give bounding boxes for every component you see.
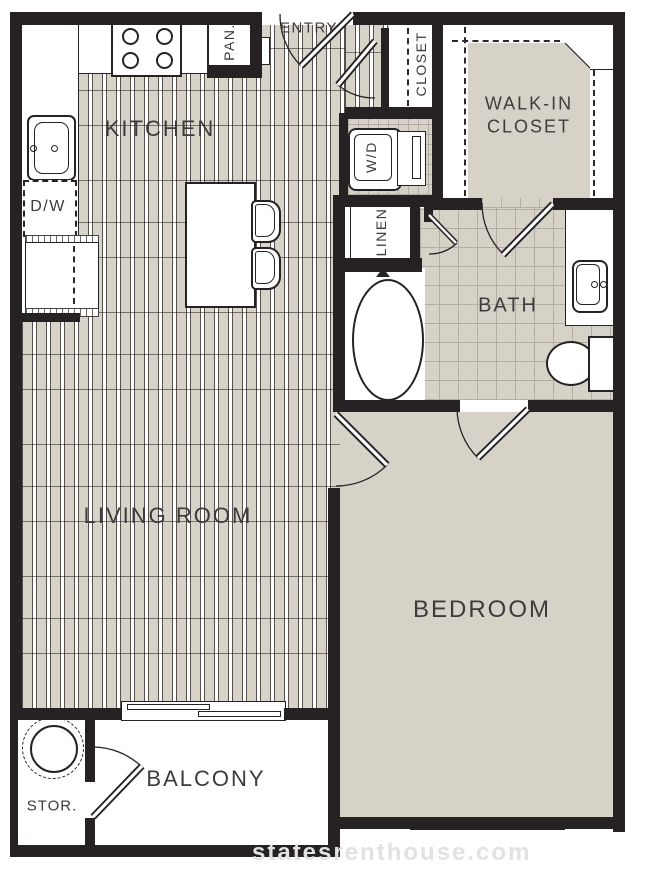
- watermark-text: statesrenthouse.com: [252, 839, 531, 867]
- wall-pantry-under: [207, 65, 250, 78]
- burner-icon: [156, 52, 173, 69]
- faucet-dot: [51, 145, 58, 152]
- faucet-dot: [591, 281, 598, 288]
- wall-living-bottom-right: [284, 708, 340, 720]
- sliding-door: [121, 701, 286, 721]
- wall-closet-right: [432, 12, 443, 210]
- washer-dryer-label: W/D: [363, 141, 379, 173]
- wall-laundry-left: [339, 113, 348, 197]
- wall-laundry-top: [345, 107, 432, 119]
- wall-bedroom-bottom: [328, 817, 625, 829]
- burner-icon: [156, 28, 173, 45]
- sliding-door-panel: [127, 704, 210, 710]
- faucet-dot: [600, 281, 607, 288]
- walkin-rod-dash-right: [593, 70, 595, 196]
- entry-label: ENTRY: [280, 20, 338, 37]
- bath-door-threshold: [482, 198, 553, 208]
- wall-storage-lower: [85, 818, 95, 845]
- linen-label: LINEN: [373, 208, 389, 257]
- bedroom-label: BEDROOM: [413, 596, 551, 624]
- kitchen-island: [185, 182, 256, 308]
- living-room-label: LIVING ROOM: [84, 503, 253, 529]
- kitchen-sink: [27, 115, 76, 181]
- balcony-label: BALCONY: [146, 766, 265, 792]
- bathtub: [352, 279, 424, 401]
- water-heater: [30, 725, 78, 773]
- wall-right: [613, 12, 625, 832]
- wall-counter-step: [18, 313, 80, 322]
- pantry-label: PAN.: [221, 23, 237, 61]
- closet-rod-dash: [407, 28, 409, 106]
- storage-label: STOR.: [27, 798, 78, 815]
- wall-linen-step: [424, 207, 433, 222]
- wall-top-left: [10, 12, 262, 25]
- faucet-dot: [30, 145, 37, 152]
- walkin-shelf-edge: [590, 69, 613, 70]
- kitchen-label: KITCHEN: [105, 116, 216, 142]
- walkin-label-line1: WALK-IN: [485, 94, 573, 115]
- sliding-door-panel: [198, 711, 281, 717]
- walkin-rod-dash-left: [464, 27, 466, 196]
- wall-living-east-mid: [333, 272, 345, 412]
- wall-closet-west: [381, 28, 389, 110]
- wall-bedroom-left: [328, 488, 340, 845]
- closet-label: CLOSET: [413, 31, 429, 96]
- wall-pantry-right: [250, 12, 262, 78]
- wall-bath-bottom-left: [333, 400, 460, 412]
- floor-plan: PAN. D/W CLOSET W/D LINEN: [0, 0, 650, 874]
- toilet-tank: [588, 336, 616, 392]
- bar-stool: [251, 247, 281, 290]
- wall-bath-top-right: [553, 198, 613, 210]
- wall-bath-top-left: [433, 198, 482, 210]
- wall-bath-bottom-right: [528, 400, 613, 412]
- dishwasher-label: D/W: [30, 198, 66, 216]
- bar-stool: [251, 200, 281, 243]
- wall-top-right: [353, 12, 625, 25]
- wall-living-bottom-left: [10, 708, 121, 720]
- burner-icon: [122, 52, 139, 69]
- walkin-shelf-dash: [452, 40, 560, 42]
- wall-linen-right: [410, 205, 420, 262]
- wall-tub-top: [333, 258, 422, 272]
- burner-icon: [122, 28, 139, 45]
- refrigerator: [25, 242, 99, 310]
- walkin-label-line2: CLOSET: [487, 117, 571, 138]
- wall-left: [10, 12, 22, 720]
- stove: [111, 17, 182, 77]
- wall-storage-upper: [85, 720, 95, 782]
- bath-label: BATH: [478, 295, 538, 318]
- wall-balcony-left: [10, 708, 18, 857]
- washer-dryer-door-panel: [397, 131, 426, 186]
- refrigerator-door-dash: [73, 246, 75, 304]
